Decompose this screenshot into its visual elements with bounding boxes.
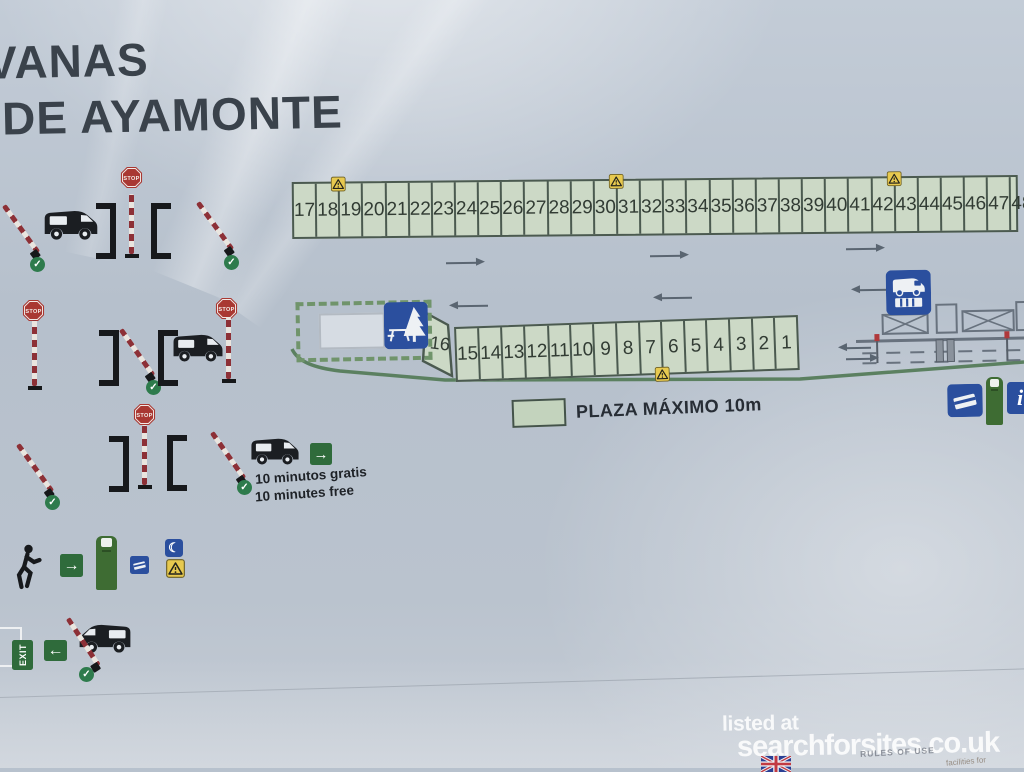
space-number: 8 bbox=[622, 337, 633, 359]
barrier-closed-icon bbox=[142, 425, 147, 485]
stop-sign: STOP bbox=[133, 403, 156, 426]
parking-space-21: 21 bbox=[386, 183, 410, 236]
parking-space-4: 4 bbox=[707, 319, 731, 371]
space-number: 3 bbox=[736, 333, 747, 355]
warning-sign bbox=[166, 559, 185, 578]
arrow-right-sign: → bbox=[60, 554, 83, 577]
entrance-box bbox=[319, 312, 386, 349]
space-number: 46 bbox=[965, 193, 986, 215]
parking-space-39: 39 bbox=[803, 179, 827, 232]
parking-space-7: 7 bbox=[640, 322, 664, 374]
parking-space-24: 24 bbox=[456, 182, 480, 235]
barrier-open-icon bbox=[2, 204, 40, 254]
parking-space-31: 31 bbox=[618, 181, 642, 234]
parking-space-26: 26 bbox=[502, 182, 526, 235]
parking-space-36: 36 bbox=[733, 180, 757, 233]
space-number: 38 bbox=[780, 195, 801, 217]
parking-space-1: 1 bbox=[775, 317, 797, 369]
space-number: 14 bbox=[480, 342, 502, 365]
space-number: 47 bbox=[988, 193, 1009, 215]
arrow-left-icon: ← bbox=[48, 642, 64, 660]
space-number: 12 bbox=[526, 340, 548, 363]
parking-space-27: 27 bbox=[525, 182, 549, 235]
parking-space-44: 44 bbox=[919, 178, 943, 231]
space-number: 6 bbox=[668, 336, 679, 358]
parking-space-46: 46 bbox=[965, 177, 989, 230]
site-title-line2: DE AYAMONTE bbox=[1, 84, 343, 145]
arrow-right-icon: → bbox=[64, 557, 80, 575]
space-number: 30 bbox=[595, 196, 616, 218]
parking-space-22: 22 bbox=[409, 183, 433, 236]
parking-space-40: 40 bbox=[826, 179, 850, 232]
space-number: 31 bbox=[618, 196, 639, 218]
space-number: 36 bbox=[734, 195, 755, 217]
svg-text:STOP: STOP bbox=[136, 413, 152, 419]
parking-space-11: 11 bbox=[549, 325, 573, 377]
arrow-right-sign: → bbox=[310, 443, 332, 465]
space-number: 45 bbox=[942, 193, 963, 215]
card-payment-sign bbox=[130, 556, 149, 574]
parking-space-42: 42 bbox=[872, 178, 896, 231]
parking-space-47: 47 bbox=[988, 177, 1012, 230]
parking-space-18: 18 bbox=[317, 184, 341, 237]
parking-space-29: 29 bbox=[571, 181, 595, 234]
space-number: 42 bbox=[872, 194, 893, 216]
parking-space-8: 8 bbox=[617, 323, 641, 375]
parking-space-48: 48 bbox=[1011, 177, 1024, 230]
parking-space-28: 28 bbox=[548, 181, 572, 234]
space-number: 4 bbox=[713, 334, 724, 356]
info-sign: i bbox=[1007, 382, 1024, 414]
moon-icon: ☾ bbox=[168, 540, 180, 556]
direction-arrow-right bbox=[846, 358, 874, 360]
card-payment-sign bbox=[947, 384, 984, 418]
space-number: 5 bbox=[690, 335, 701, 357]
exit-sign: EXIT bbox=[12, 640, 33, 670]
direction-arrow-right bbox=[446, 262, 480, 265]
stop-sign: STOP bbox=[120, 166, 143, 189]
space-number: 1 bbox=[781, 332, 792, 354]
parking-space-13: 13 bbox=[502, 327, 527, 379]
parking-space-2: 2 bbox=[753, 318, 777, 370]
check-icon: ✓ bbox=[237, 480, 252, 495]
space-number: 37 bbox=[757, 195, 778, 217]
barrier-closed-icon bbox=[129, 194, 134, 254]
check-icon: ✓ bbox=[224, 255, 239, 270]
parking-space-19: 19 bbox=[340, 183, 364, 236]
parking-space-41: 41 bbox=[849, 178, 873, 231]
space-number: 13 bbox=[503, 341, 525, 364]
parking-space-32: 32 bbox=[641, 180, 665, 233]
space-number: 48 bbox=[1011, 192, 1024, 214]
stop-sign: STOP bbox=[22, 299, 45, 322]
direction-arrow-left bbox=[843, 347, 871, 349]
space-number: 20 bbox=[363, 199, 384, 221]
gate-post-right bbox=[96, 203, 116, 259]
parking-space-14: 14 bbox=[479, 327, 504, 379]
lens-flare-streak bbox=[212, 0, 508, 328]
svg-text:STOP: STOP bbox=[123, 176, 139, 182]
gate-post-right bbox=[109, 436, 129, 492]
legend-swatch bbox=[512, 398, 567, 428]
board-edge-seam bbox=[0, 668, 1024, 698]
parking-space-6: 6 bbox=[662, 321, 686, 373]
night-sign: ☾ bbox=[165, 539, 183, 557]
space-number: 26 bbox=[502, 197, 523, 219]
space-number: 10 bbox=[572, 339, 594, 362]
parking-space-35: 35 bbox=[710, 180, 734, 233]
barrier-open-icon bbox=[119, 328, 155, 377]
space-number: 23 bbox=[433, 198, 454, 220]
parking-space-30: 30 bbox=[595, 181, 619, 234]
uk-flag-icon bbox=[761, 756, 791, 772]
gate-post-right bbox=[99, 330, 119, 386]
motorhome-icon bbox=[171, 330, 225, 364]
check-icon: ✓ bbox=[30, 257, 45, 272]
direction-arrow-left bbox=[454, 305, 488, 308]
parking-space-45: 45 bbox=[942, 178, 966, 231]
picnic-area-sign bbox=[384, 302, 429, 350]
exit-label: EXIT bbox=[18, 644, 28, 666]
space-number: 29 bbox=[572, 197, 593, 219]
parking-space-38: 38 bbox=[780, 179, 804, 232]
space-number: 17 bbox=[294, 199, 315, 221]
space-number: 34 bbox=[687, 196, 708, 218]
direction-arrow-left bbox=[856, 289, 890, 292]
svg-text:STOP: STOP bbox=[218, 307, 234, 313]
space-number: 39 bbox=[803, 194, 824, 216]
parking-space-43: 43 bbox=[895, 178, 919, 231]
space-number: 40 bbox=[826, 194, 847, 216]
space-number: 27 bbox=[525, 197, 546, 219]
parking-space-10: 10 bbox=[571, 324, 596, 376]
space-number: 2 bbox=[758, 333, 769, 355]
space-number: 21 bbox=[386, 198, 407, 220]
service-pillar bbox=[986, 377, 1003, 425]
space-number: 35 bbox=[710, 195, 731, 217]
arrow-right-icon: → bbox=[314, 446, 329, 463]
parking-space-17: 17 bbox=[294, 184, 318, 237]
direction-arrow-right bbox=[846, 248, 880, 251]
service-pillar bbox=[96, 536, 117, 590]
barrier-open-icon bbox=[196, 201, 234, 251]
space-number: 19 bbox=[340, 199, 361, 221]
space-number: 24 bbox=[456, 198, 477, 220]
parking-space-9: 9 bbox=[594, 323, 618, 375]
space-number: 22 bbox=[410, 198, 431, 220]
barrier-open-icon bbox=[16, 443, 54, 493]
space-number: 18 bbox=[317, 199, 338, 221]
space-number: 32 bbox=[641, 196, 662, 218]
gate-post-left bbox=[151, 203, 171, 259]
lens-flare-streak bbox=[151, 0, 369, 304]
space-number: 33 bbox=[664, 196, 685, 218]
space-number: 41 bbox=[849, 194, 870, 216]
motorhome-icon bbox=[249, 434, 301, 467]
parking-space-25: 25 bbox=[479, 182, 503, 235]
legend-label: PLAZA MÁXIMO 10m bbox=[576, 394, 762, 422]
arrow-left-sign: ← bbox=[44, 640, 67, 661]
parking-space-3: 3 bbox=[730, 319, 754, 371]
space-number: 44 bbox=[919, 193, 940, 215]
site-title-line1: VANAS bbox=[0, 32, 149, 89]
check-icon: ✓ bbox=[45, 495, 60, 510]
direction-arrow-left bbox=[658, 297, 692, 300]
barrier-closed-icon bbox=[32, 320, 37, 386]
space-number: 9 bbox=[600, 338, 611, 360]
space-number: 7 bbox=[645, 336, 656, 358]
info-icon: i bbox=[1017, 385, 1023, 411]
parking-space-37: 37 bbox=[757, 179, 781, 232]
motorhome-icon bbox=[42, 206, 100, 242]
space-number: 28 bbox=[548, 197, 569, 219]
gate-post-left bbox=[167, 435, 187, 491]
direction-arrow-right bbox=[650, 255, 684, 258]
svg-text:STOP: STOP bbox=[25, 309, 41, 315]
parking-space-20: 20 bbox=[363, 183, 387, 236]
barrier-closed-icon bbox=[226, 317, 231, 379]
parking-space-34: 34 bbox=[687, 180, 711, 233]
parking-space-5: 5 bbox=[685, 320, 709, 372]
motorhome-service-sign bbox=[886, 270, 932, 316]
top-row: 1718192021222324252627282930313233343536… bbox=[292, 175, 1019, 239]
pedestrian-icon bbox=[12, 543, 42, 593]
parking-space-12: 12 bbox=[525, 326, 550, 378]
space-number: 11 bbox=[550, 340, 570, 363]
space-number: 43 bbox=[896, 194, 917, 216]
bottom-row: 151413121110987654321 bbox=[454, 315, 800, 382]
parking-space-23: 23 bbox=[433, 182, 457, 235]
parking-space-33: 33 bbox=[664, 180, 688, 233]
barrier-open-icon bbox=[210, 431, 246, 480]
space-number: 25 bbox=[479, 198, 500, 220]
